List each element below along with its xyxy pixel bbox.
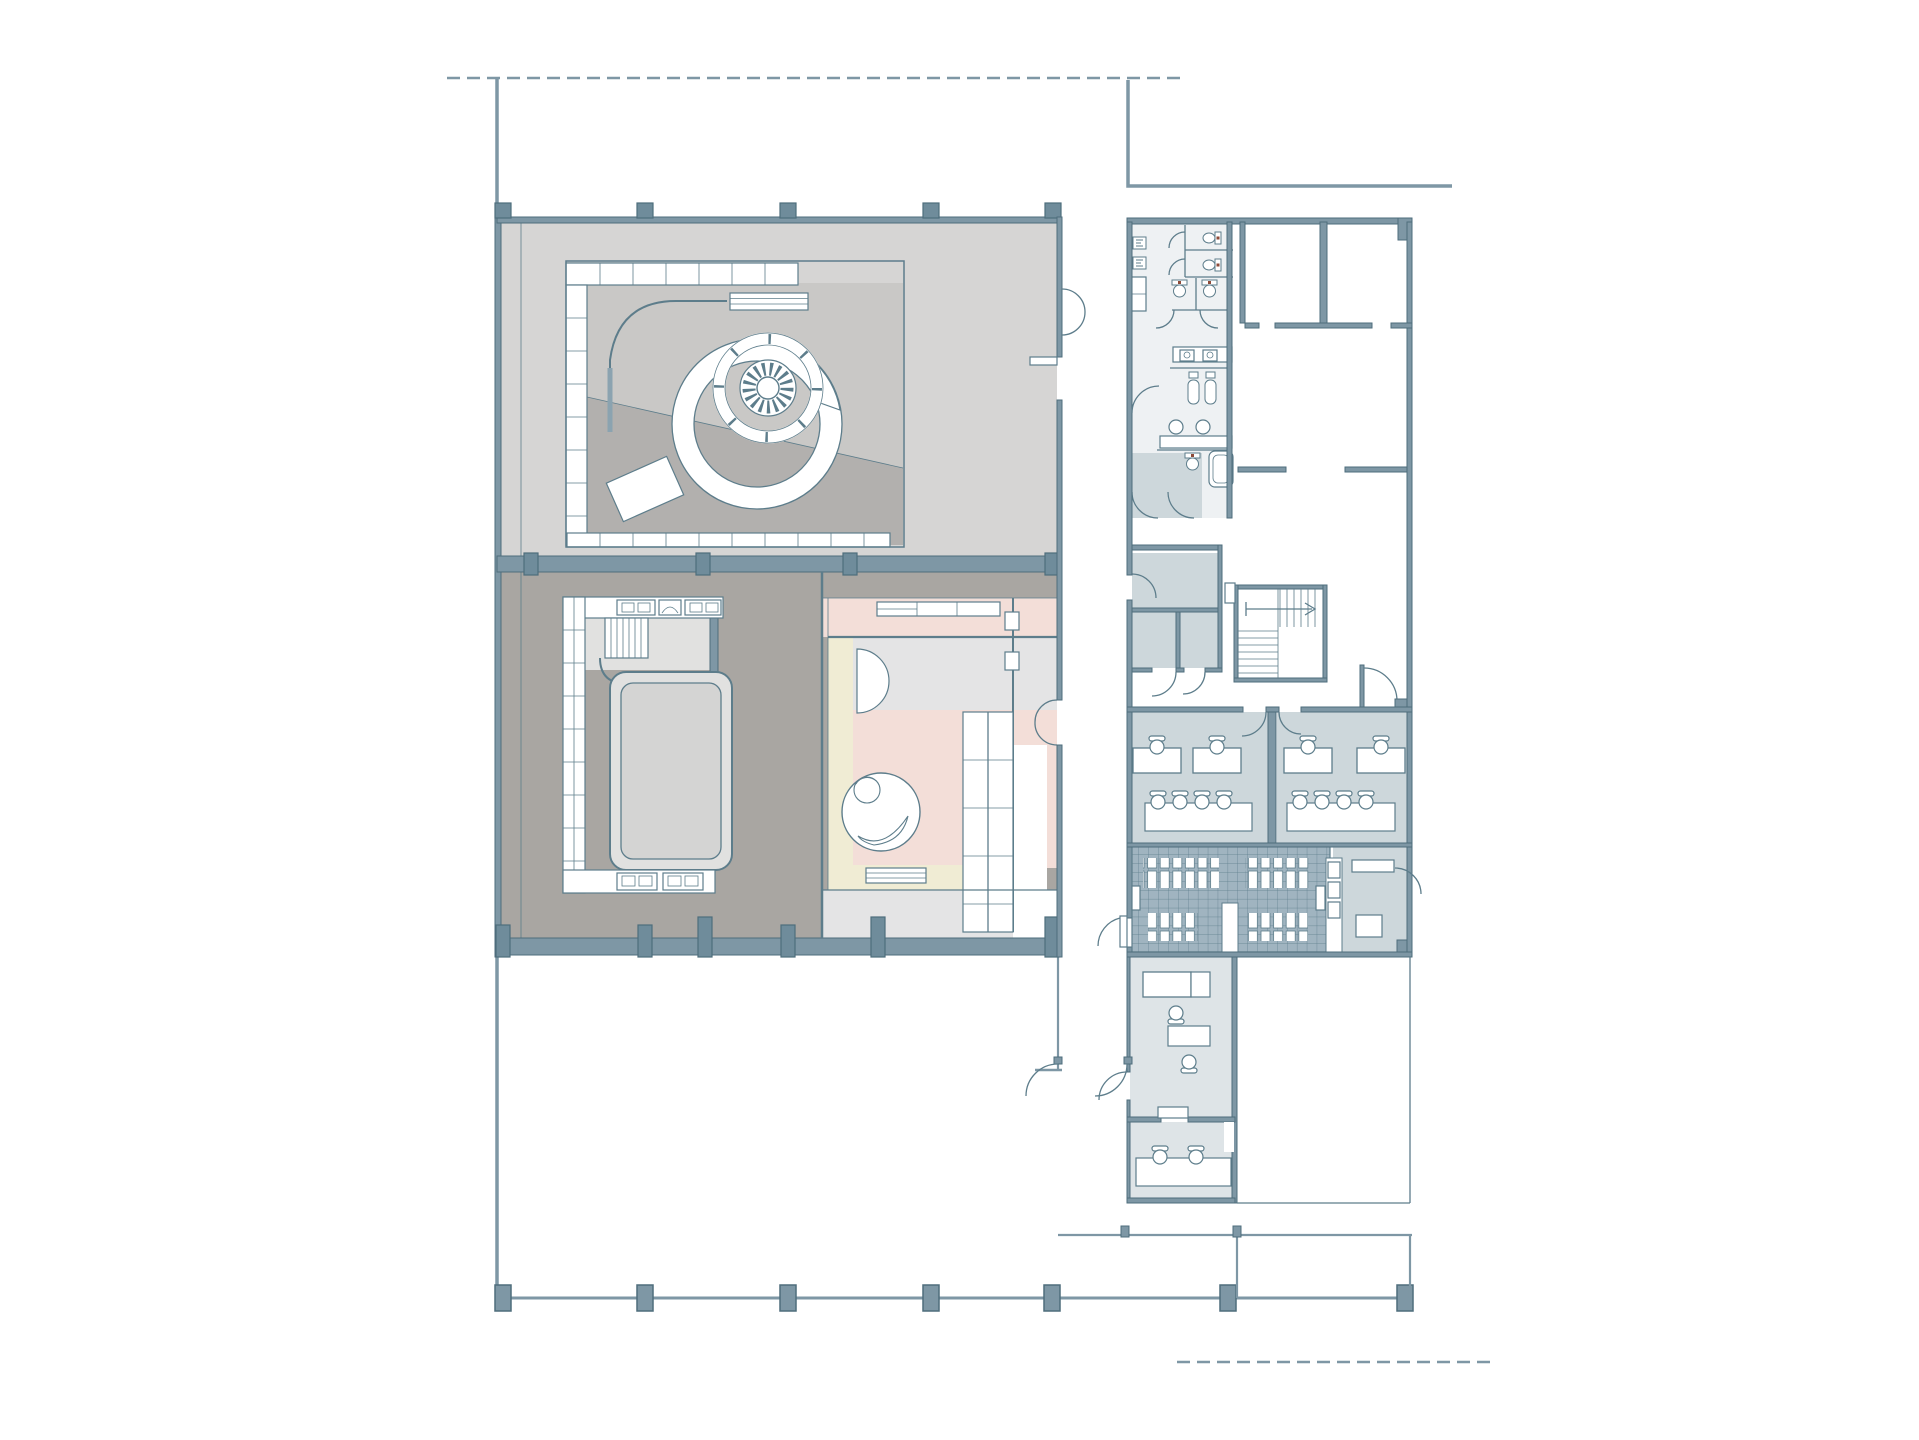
suite-east-corridor <box>1013 745 1047 890</box>
core-east-wall <box>1227 222 1232 518</box>
pier <box>638 925 652 957</box>
round-sink-icon <box>1196 420 1210 434</box>
chair-icon <box>1188 1146 1204 1164</box>
vestibule-room-b <box>1132 612 1178 668</box>
wall-west-upper <box>1127 222 1132 575</box>
locker-room <box>1132 845 1342 952</box>
chair-icon <box>1168 1006 1184 1024</box>
wall-south <box>1127 1198 1235 1203</box>
vestibule-room-a <box>1132 553 1218 610</box>
door-arc <box>1152 672 1176 696</box>
toilet-icon <box>1185 453 1200 470</box>
pier <box>923 203 939 218</box>
chair-icon <box>1216 791 1232 809</box>
shelf <box>1352 860 1394 872</box>
chair-icon <box>1149 736 1165 754</box>
truss-bottom <box>567 533 890 547</box>
gap-door <box>1098 916 1127 947</box>
left-block <box>495 203 1062 957</box>
column <box>637 1285 653 1311</box>
round-sink-icon <box>1169 420 1183 434</box>
door-arc <box>1062 312 1085 335</box>
wall-west <box>495 217 501 957</box>
locker-aisle <box>1222 903 1238 952</box>
room-west-wall <box>1240 222 1245 323</box>
pier <box>495 203 511 218</box>
shelf-nook <box>1005 612 1019 630</box>
locker-slot-row <box>1143 858 1219 888</box>
toilet-icon <box>1172 280 1187 297</box>
chair-icon <box>1292 791 1308 809</box>
wall-mid <box>497 556 1062 572</box>
urinal-icon <box>1133 257 1146 269</box>
bench <box>866 868 926 883</box>
pier <box>637 203 653 218</box>
desk <box>1168 1026 1210 1046</box>
chair-icon <box>1150 791 1166 809</box>
room-divider <box>1320 222 1327 323</box>
chair-icon <box>1209 736 1225 754</box>
open-door-leaf <box>1030 357 1057 365</box>
pier <box>696 553 710 575</box>
pier <box>843 553 857 575</box>
locker-slot-row <box>1246 913 1308 941</box>
wardrobe-units <box>963 712 1013 932</box>
door-gap <box>1224 1122 1234 1152</box>
bench <box>1132 886 1140 910</box>
upper-hall <box>566 261 904 547</box>
office-divider <box>1268 712 1276 845</box>
terrace-stub <box>1233 1226 1241 1237</box>
stair-vestibule <box>1360 665 1407 710</box>
bench <box>1316 886 1325 910</box>
stair-direction-line <box>1246 602 1312 616</box>
north-wall-piers <box>495 203 1061 218</box>
shower-icon <box>1205 372 1216 404</box>
column <box>923 1285 939 1311</box>
toilet-icon <box>1203 232 1221 244</box>
door-arc <box>1098 918 1120 946</box>
corridor-wall <box>1232 957 1237 1203</box>
column <box>1220 1285 1236 1311</box>
chair-icon <box>1194 791 1210 809</box>
desk <box>1143 972 1191 997</box>
door-arc <box>1099 1072 1127 1100</box>
wall-east-2 <box>1057 400 1062 700</box>
pier <box>871 917 885 957</box>
column <box>1044 1285 1060 1311</box>
shelf-nook <box>1005 652 1019 670</box>
shower-icon <box>1188 372 1199 404</box>
chair-icon <box>1152 1146 1168 1164</box>
wall-west-mid <box>1127 600 1132 918</box>
chair-icon <box>1300 736 1316 754</box>
corridor-outline <box>1237 957 1410 1203</box>
cream-runner-west <box>828 637 853 890</box>
truss-left <box>566 285 587 545</box>
box <box>1356 915 1382 937</box>
console-top-units <box>617 600 721 615</box>
wall-lockers-south <box>1127 952 1412 957</box>
locker-slot-row <box>1148 913 1198 941</box>
desk-extension <box>1191 972 1210 997</box>
wall-south <box>497 938 1062 955</box>
striped-batten <box>730 293 808 310</box>
door-arc <box>1364 668 1397 701</box>
urinal-icon <box>1133 237 1146 249</box>
door-arc <box>1062 289 1085 312</box>
pier <box>781 925 795 957</box>
locker-slot-row <box>1245 858 1309 888</box>
vanity-counter <box>1160 436 1232 448</box>
stairwell <box>1225 583 1327 682</box>
round-lounge-sofa <box>842 773 920 851</box>
door-arc <box>1183 672 1205 694</box>
chair-icon <box>1172 791 1188 809</box>
pier <box>496 925 510 957</box>
floor-plan-canvas <box>0 0 1919 1440</box>
column <box>780 1285 796 1311</box>
wall-east-1 <box>1057 217 1062 357</box>
open-door-leaf <box>1158 1107 1188 1118</box>
chair-icon <box>1181 1055 1197 1073</box>
toilet-icon <box>1202 280 1217 297</box>
pier <box>698 917 712 957</box>
terrace-stub <box>1121 1226 1129 1237</box>
pier <box>780 203 796 218</box>
pier <box>1045 203 1061 218</box>
chair-icon <box>1314 791 1330 809</box>
floor-plan-drawing <box>0 0 1919 1440</box>
chair-icon <box>1373 736 1389 754</box>
toilet-icon <box>1203 259 1221 271</box>
chair-icon <box>1336 791 1352 809</box>
wall-east-3 <box>1057 745 1062 957</box>
pier <box>524 553 538 575</box>
sunburst-hub <box>757 377 779 399</box>
wall-stub <box>710 617 718 673</box>
site-wall-northeast <box>1128 80 1452 186</box>
column <box>495 1285 511 1311</box>
meeting-table <box>1136 1158 1231 1186</box>
chair-icon <box>1358 791 1374 809</box>
vestibule-room-c <box>1180 612 1220 668</box>
wall-north <box>1127 218 1412 224</box>
door-leaf <box>1120 916 1127 947</box>
truss-top <box>566 263 798 285</box>
wall-offices-lockers <box>1127 843 1412 847</box>
stair-treads-upper <box>1280 589 1315 627</box>
walkway-doors <box>1026 1057 1132 1096</box>
stair-treads-lower <box>1238 631 1278 673</box>
right-block <box>1026 218 1421 1203</box>
rounded-platform-inner <box>621 683 721 859</box>
shaft-box <box>1225 583 1235 603</box>
